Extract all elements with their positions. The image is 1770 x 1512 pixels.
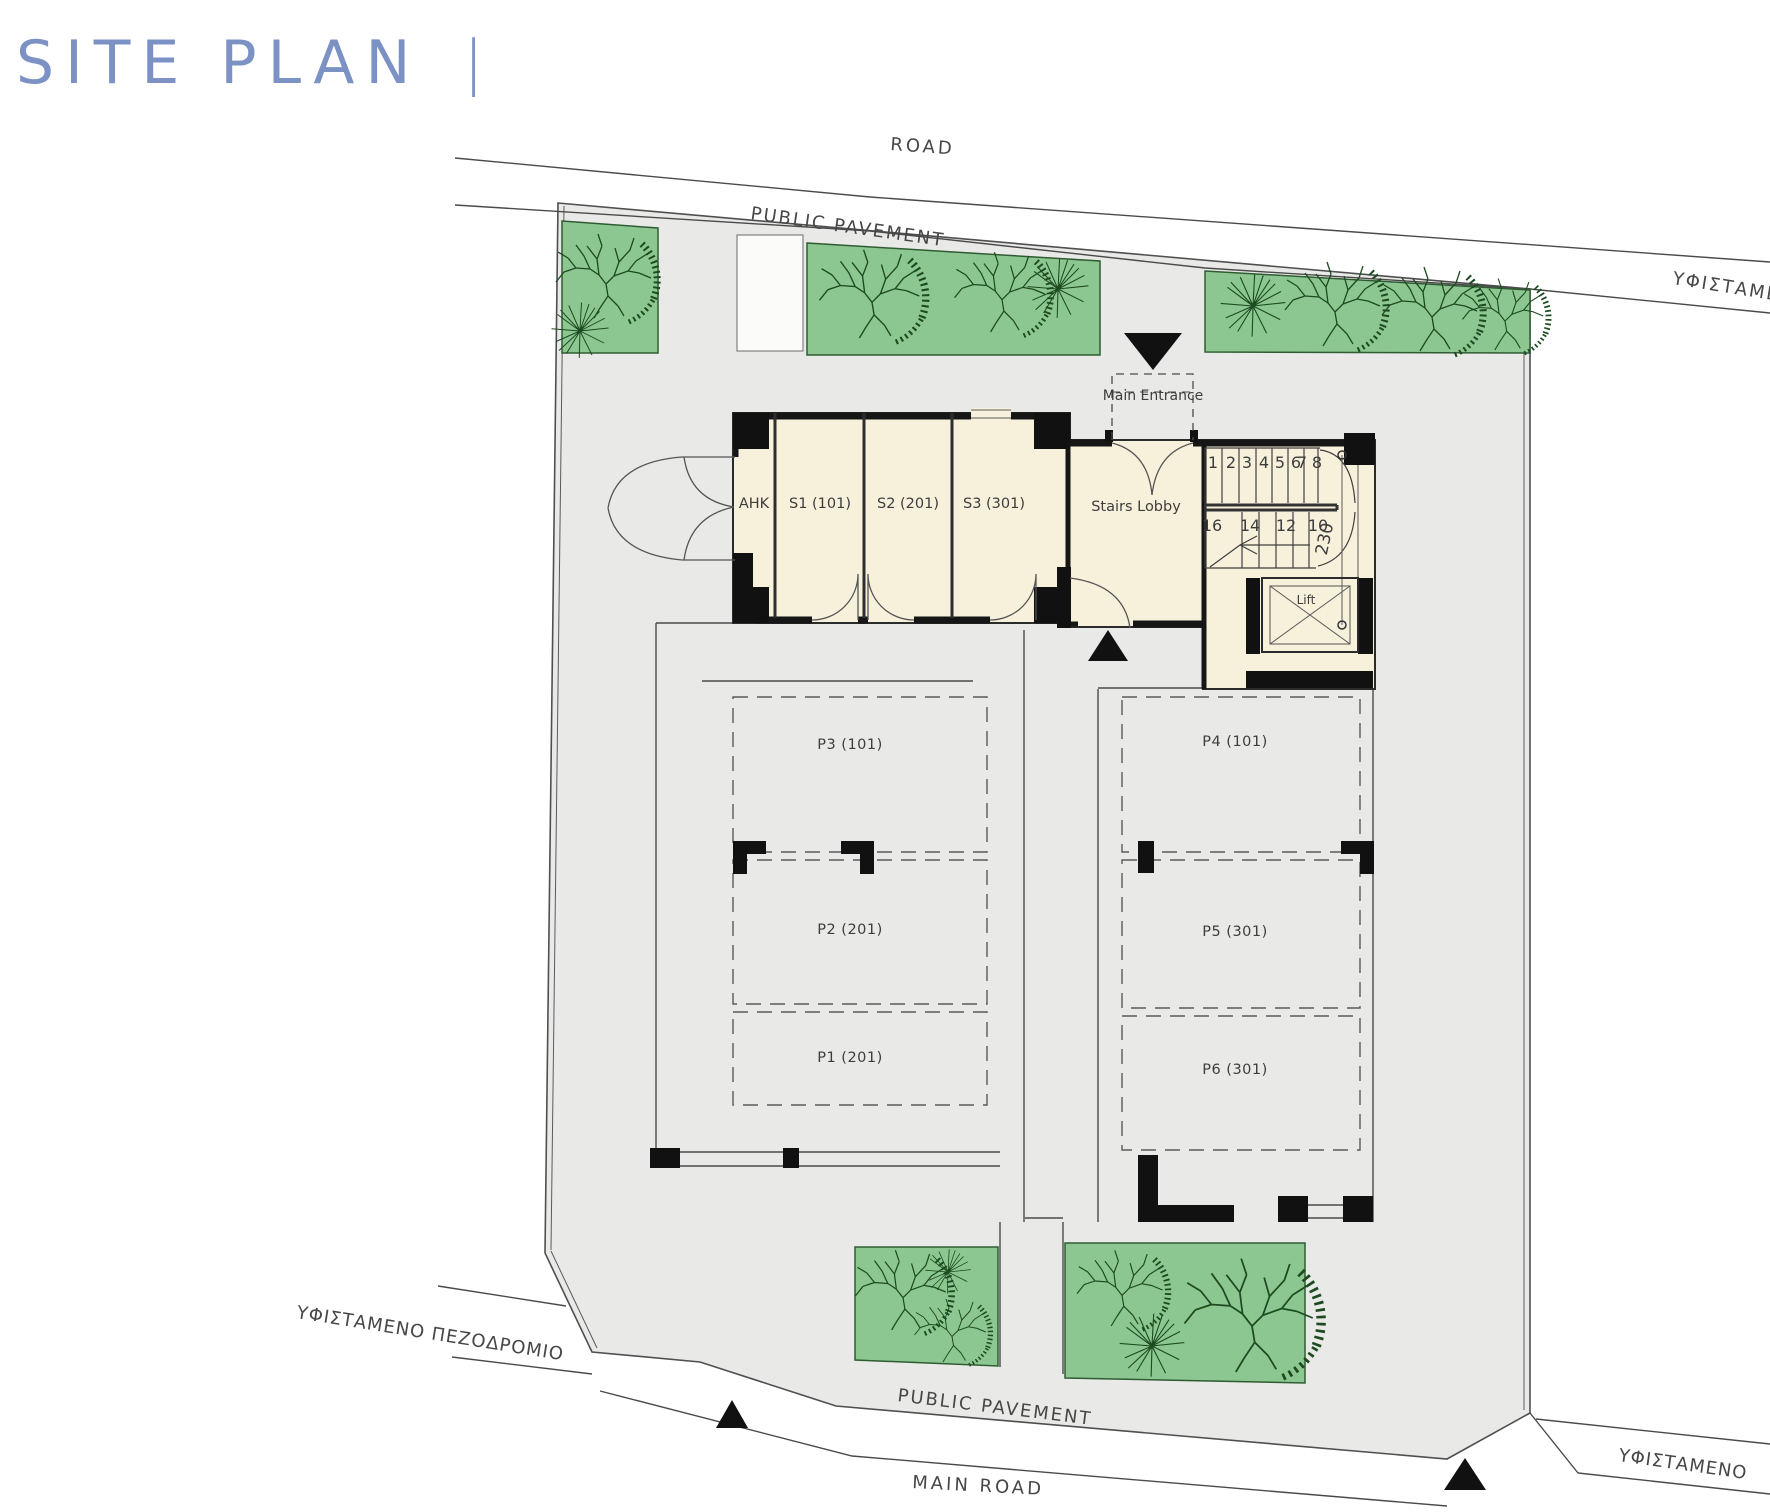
- access-arrow-icon: [1444, 1458, 1486, 1490]
- road-top-label: ROAD: [890, 134, 956, 159]
- existing-pavement-left-label: ΥΦΙΣΤΑΜΕΝΟ ΠΕΖΟΔΡΟΜΙΟ: [294, 1302, 565, 1365]
- stair-number: 1: [1208, 453, 1218, 472]
- stair-number: 5: [1275, 453, 1285, 472]
- stair-number: 12: [1276, 516, 1296, 535]
- parking-label-p6: P6 (301): [1202, 1062, 1268, 1078]
- garage-wall: [1278, 1196, 1308, 1222]
- parking-label-p4: P4 (101): [1202, 734, 1268, 750]
- parking-label-p3: P3 (101): [817, 737, 883, 753]
- room-label-ahk: AHK: [739, 496, 770, 512]
- green-area: [807, 243, 1100, 355]
- existing-bottom-right-label: ΥΦΙΣΤΑΜΕΝΟ: [1616, 1445, 1748, 1484]
- parking-label-p1: P1 (201): [817, 1050, 883, 1066]
- stair-number: 4: [1259, 453, 1269, 472]
- title-separator: |: [463, 28, 494, 98]
- parking-label-p2: P2 (201): [817, 922, 883, 938]
- room-label-s3: S3 (301): [963, 496, 1025, 512]
- green-area: [562, 221, 658, 353]
- site-plan-drawing: ROAD PUBLIC PAVEMENT ΥΦΙΣΤΑΜΕΝ ΥΦΙΣΤΑΜΕΝ…: [0, 0, 1770, 1512]
- lift-label: Lift: [1297, 593, 1316, 607]
- garage-wall: [650, 1148, 680, 1168]
- stair-number: 8: [1312, 453, 1322, 472]
- stair-number: 7: [1297, 453, 1307, 472]
- garage-wall: [1343, 1196, 1373, 1222]
- site-plan-page: SITE PLAN|: [0, 0, 1770, 1512]
- column-marker: [1138, 841, 1154, 873]
- main-entrance-label: Main Entrance: [1103, 388, 1204, 404]
- page-title: SITE PLAN|: [16, 28, 495, 98]
- garage-wall: [783, 1148, 799, 1168]
- pavement-cutout: [737, 235, 803, 351]
- title-text: SITE PLAN: [16, 28, 421, 98]
- room-label-s2: S2 (201): [877, 496, 939, 512]
- stair-number: 2: [1226, 453, 1236, 472]
- room-label-s1: S1 (101): [789, 496, 851, 512]
- stair-number: 3: [1242, 453, 1252, 472]
- existing-right-label: ΥΦΙΣΤΑΜΕΝ: [1670, 268, 1770, 308]
- stair-number: 14: [1240, 516, 1260, 535]
- access-arrow-icon: [716, 1400, 748, 1428]
- garage-wall: [1138, 1205, 1234, 1222]
- stairs-lobby-label: Stairs Lobby: [1091, 499, 1181, 515]
- stair-number: 16: [1202, 516, 1222, 535]
- main-road-label: MAIN ROAD: [912, 1472, 1045, 1500]
- site-boundary: [545, 203, 1530, 1459]
- parking-label-p5: P5 (301): [1202, 924, 1268, 940]
